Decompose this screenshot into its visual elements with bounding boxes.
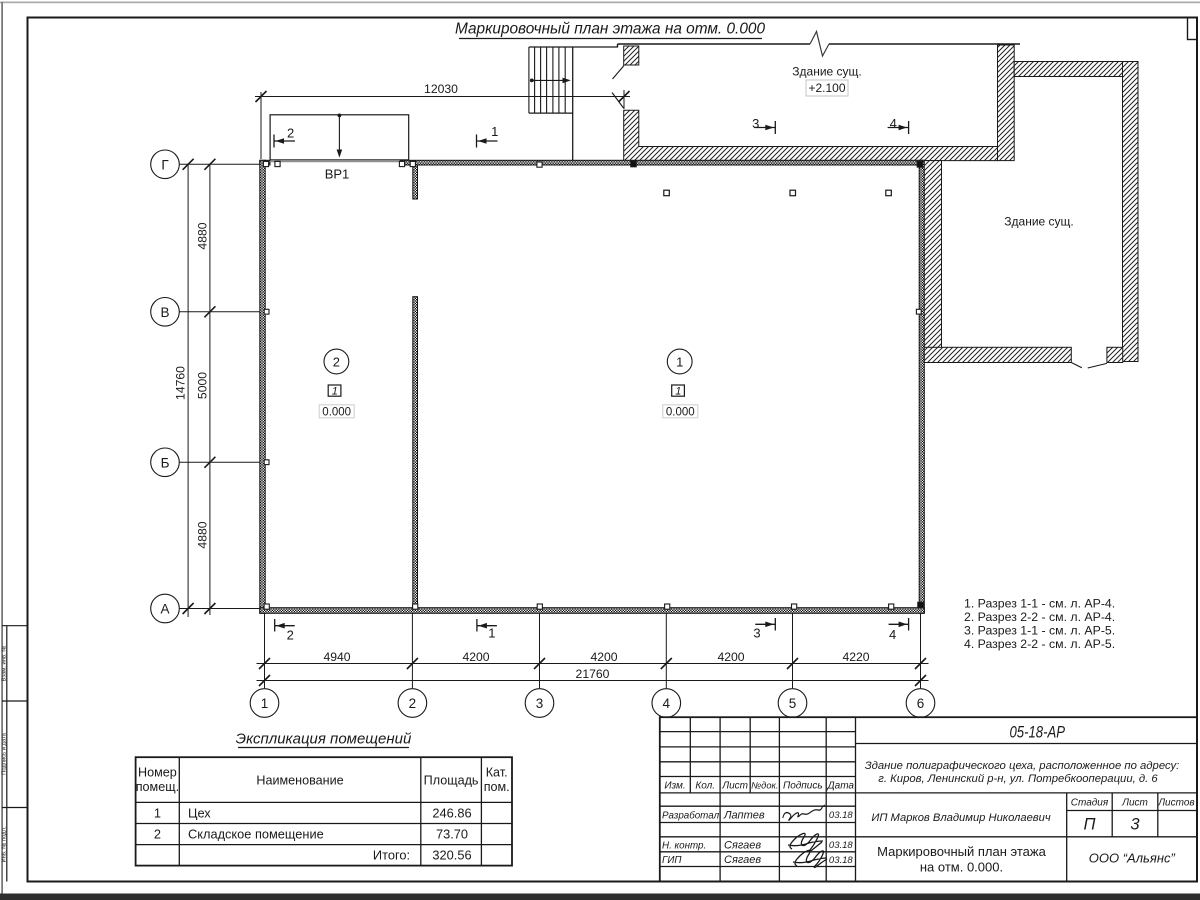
svg-text:Маркировочный план этажа: Маркировочный план этажа bbox=[877, 844, 1046, 859]
svg-text:Дата: Дата bbox=[827, 781, 855, 792]
svg-text:Сягаев: Сягаев bbox=[724, 854, 761, 866]
svg-text:+2.100: +2.100 bbox=[808, 81, 845, 95]
svg-text:пом.: пом. bbox=[484, 780, 510, 794]
svg-text:Лист: Лист bbox=[721, 781, 748, 792]
svg-text:4: 4 bbox=[889, 627, 896, 642]
svg-text:Изм.: Изм. bbox=[664, 781, 685, 792]
svg-text:1: 1 bbox=[676, 354, 683, 369]
svg-text:Номер: Номер bbox=[138, 766, 177, 780]
svg-text:Наименование: Наименование bbox=[256, 774, 343, 788]
svg-text:Инв. № подл.: Инв. № подл. bbox=[1, 826, 7, 862]
svg-text:4: 4 bbox=[663, 696, 671, 711]
svg-text:1: 1 bbox=[332, 386, 338, 398]
svg-text:Лист: Лист bbox=[1121, 798, 1148, 809]
svg-text:Листов: Листов bbox=[1157, 798, 1194, 809]
svg-text:на отм. 0.000.: на отм. 0.000. bbox=[920, 860, 1003, 875]
svg-text:ГИП: ГИП bbox=[662, 855, 682, 866]
svg-text:Цех: Цех bbox=[188, 806, 211, 821]
svg-text:Взам. инв. №: Взам. инв. № bbox=[1, 646, 7, 682]
svg-text:5000: 5000 bbox=[195, 372, 209, 399]
svg-text:3: 3 bbox=[752, 116, 759, 131]
svg-text:Кол.: Кол. bbox=[695, 781, 715, 792]
svg-text:П: П bbox=[1084, 816, 1096, 834]
svg-text:А: А bbox=[160, 602, 169, 617]
svg-text:Подпись: Подпись bbox=[783, 781, 823, 792]
svg-text:ООО “Альянс”: ООО “Альянс” bbox=[1089, 851, 1176, 866]
svg-text:2: 2 bbox=[287, 126, 294, 141]
svg-text:3: 3 bbox=[753, 626, 760, 641]
svg-text:2: 2 bbox=[154, 827, 161, 842]
svg-text:03.18: 03.18 bbox=[829, 840, 853, 851]
svg-text:4880: 4880 bbox=[195, 222, 209, 249]
svg-text:2: 2 bbox=[287, 628, 294, 643]
svg-text:Складское помещение: Складское помещение bbox=[188, 827, 324, 842]
svg-text:4220: 4220 bbox=[842, 650, 869, 664]
svg-text:г. Киров, Ленинский р-н, ул.: г. Киров, Ленинский р-н, ул. Потребкоопе… bbox=[878, 773, 1158, 785]
svg-text:Здание сущ.: Здание сущ. bbox=[792, 65, 861, 79]
svg-text:14760: 14760 bbox=[174, 366, 188, 400]
svg-text:0.000: 0.000 bbox=[666, 406, 695, 418]
svg-text:Подпись и дата: Подпись и дата bbox=[1, 732, 7, 774]
svg-text:Здание сущ.: Здание сущ. bbox=[1004, 215, 1073, 229]
svg-text:ИП Марков Владимир Николаевич: ИП Марков Владимир Николаевич bbox=[871, 812, 1051, 824]
svg-text:Площадь: Площадь bbox=[424, 774, 479, 788]
svg-text:21760: 21760 bbox=[576, 667, 610, 681]
svg-text:Сягаев: Сягаев bbox=[724, 840, 761, 852]
svg-text:3: 3 bbox=[1130, 816, 1140, 834]
svg-text:3: 3 bbox=[536, 696, 544, 711]
svg-text:320.56: 320.56 bbox=[432, 848, 471, 863]
svg-text:Здание полиграфического цеха,: Здание полиграфического цеха, расположен… bbox=[865, 760, 1180, 772]
svg-text:3. Разрез 1-1 - см. л. АР-5.: 3. Разрез 1-1 - см. л. АР-5. bbox=[964, 623, 1115, 637]
svg-text:4200: 4200 bbox=[590, 650, 617, 664]
svg-text:Б: Б bbox=[161, 455, 170, 470]
svg-text:05-18-АР: 05-18-АР bbox=[1010, 723, 1066, 742]
svg-text:Разработал: Разработал bbox=[662, 811, 720, 822]
svg-text:5: 5 bbox=[789, 696, 797, 711]
svg-text:4880: 4880 bbox=[195, 521, 209, 548]
svg-text:Г: Г bbox=[161, 157, 169, 172]
svg-text:Итого:: Итого: bbox=[373, 848, 410, 863]
svg-text:4200: 4200 bbox=[462, 650, 489, 664]
svg-text:12030: 12030 bbox=[424, 82, 458, 96]
svg-text:2: 2 bbox=[409, 696, 417, 711]
svg-text:Экспликация помещений: Экспликация помещений bbox=[236, 731, 412, 748]
svg-text:помещ.: помещ. bbox=[136, 780, 179, 794]
svg-text:1. Разрез 1-1 - см. л. АР-4.: 1. Разрез 1-1 - см. л. АР-4. bbox=[964, 597, 1115, 611]
svg-text:В: В bbox=[160, 305, 169, 320]
svg-text:4: 4 bbox=[890, 116, 897, 131]
svg-text:73.70: 73.70 bbox=[436, 827, 468, 842]
svg-text:Кат.: Кат. bbox=[486, 766, 508, 780]
svg-text:2. Разрез 2-2 - см. л. АР-4.: 2. Разрез 2-2 - см. л. АР-4. bbox=[964, 610, 1115, 624]
svg-text:2: 2 bbox=[333, 354, 340, 369]
svg-text:03.18: 03.18 bbox=[829, 810, 853, 821]
svg-text:№док.: №док. bbox=[751, 781, 778, 791]
svg-text:Стадия: Стадия bbox=[1071, 798, 1109, 809]
svg-text:0.000: 0.000 bbox=[322, 406, 351, 418]
svg-text:1: 1 bbox=[488, 626, 495, 641]
svg-text:Н. контр.: Н. контр. bbox=[662, 841, 706, 852]
svg-text:Лаптев: Лаптев bbox=[723, 810, 765, 822]
svg-text:4200: 4200 bbox=[717, 650, 744, 664]
svg-text:4940: 4940 bbox=[323, 650, 350, 664]
svg-text:Маркировочный план этажа на от: Маркировочный план этажа на отм. 0.000 bbox=[455, 21, 765, 38]
svg-text:03.18: 03.18 bbox=[829, 855, 853, 866]
svg-text:1: 1 bbox=[154, 806, 161, 821]
svg-text:1: 1 bbox=[491, 124, 498, 139]
svg-text:ВР1: ВР1 bbox=[325, 167, 350, 182]
svg-text:1: 1 bbox=[261, 696, 269, 711]
svg-text:1: 1 bbox=[675, 386, 681, 398]
svg-text:4. Разрез 2-2 - см. л. АР-5.: 4. Разрез 2-2 - см. л. АР-5. bbox=[964, 637, 1115, 651]
svg-text:6: 6 bbox=[917, 696, 925, 711]
svg-text:246.86: 246.86 bbox=[432, 806, 471, 821]
